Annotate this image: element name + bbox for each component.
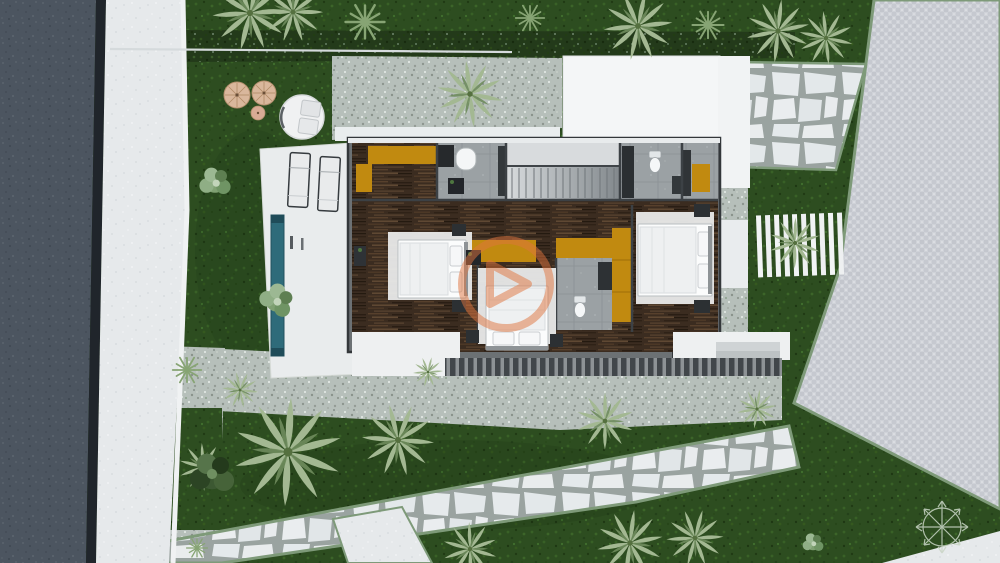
step: [716, 342, 780, 351]
nightstand: [694, 300, 710, 313]
toilet: [649, 151, 661, 173]
wardrobe-corner: [692, 164, 710, 192]
parapet: [348, 138, 720, 143]
wardrobe-L-side: [356, 164, 372, 192]
walkway-left: [352, 332, 460, 376]
render-canvas: [0, 0, 1000, 563]
double-bed-left: [398, 240, 468, 298]
round-daybed: [280, 95, 324, 139]
nightstand: [694, 204, 710, 217]
bathtub: [456, 148, 476, 170]
straw-parasol: [224, 82, 250, 108]
side-terrace-lower: [718, 220, 748, 288]
sun-lounger: [318, 157, 341, 212]
double-bed-right: [638, 224, 712, 296]
nightstand: [550, 334, 563, 347]
nightstand: [466, 330, 479, 343]
sun-lounger: [288, 153, 311, 208]
straw-parasol-small: [251, 106, 265, 120]
sidewalk: [96, 0, 186, 563]
pool-step: [271, 348, 284, 356]
shower: [598, 262, 614, 290]
bath-wardrobe: [622, 146, 634, 198]
pool-towel: [290, 236, 293, 249]
pool-towel: [301, 238, 304, 250]
wardrobe-band-2: [556, 238, 620, 258]
asphalt-road: [0, 0, 96, 563]
side-gravel: [718, 188, 748, 220]
side-terrace-upper: [718, 56, 750, 188]
site-plan-render: [0, 0, 1000, 563]
flat-roof: [563, 56, 720, 140]
wardrobe-tall: [612, 228, 632, 322]
straw-parasol: [252, 81, 276, 105]
bath-mat: [448, 178, 464, 194]
vanity-counter: [438, 145, 454, 167]
toilet: [574, 296, 586, 318]
corner-bench: [683, 150, 691, 196]
nightstand: [452, 224, 466, 236]
wardrobe-L-top: [368, 146, 436, 164]
pool-step: [271, 215, 284, 223]
stair-landing: [506, 143, 620, 166]
pergola-slats: [445, 358, 782, 376]
